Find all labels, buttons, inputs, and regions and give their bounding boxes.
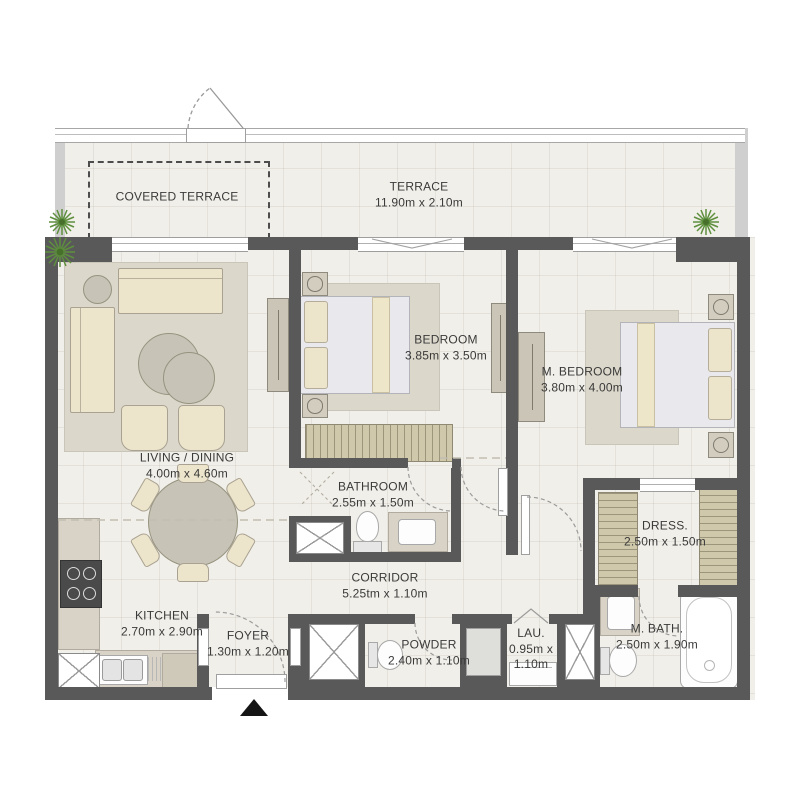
room-label-powder: POWDER 2.40m x 1.10m xyxy=(388,638,470,669)
room-dims: 3.80m x 4.00m xyxy=(541,380,623,396)
shaft-x xyxy=(296,522,344,554)
shaft-x xyxy=(309,624,359,680)
room-name: M. BATH. xyxy=(616,622,698,638)
room-name: LIVING / DINING xyxy=(140,451,234,467)
room-label-bedroom: BEDROOM 3.85m x 3.50m xyxy=(405,333,487,364)
wall xyxy=(365,614,415,624)
room-dims: 2.70m x 2.90m xyxy=(121,624,203,640)
room-dims: 3.85m x 3.50m xyxy=(405,348,487,364)
chair-icon xyxy=(177,563,209,582)
room-name: M. BEDROOM xyxy=(541,365,623,381)
wall xyxy=(289,458,408,468)
room-dims: 2.50m x 1.50m xyxy=(624,534,706,550)
room-label-master-bath: M. BATH. 2.50m x 1.90m xyxy=(616,622,698,653)
wall xyxy=(595,585,638,597)
nightstand-icon xyxy=(708,432,734,458)
room-name: LAU. xyxy=(503,626,559,642)
entry-arrow-icon xyxy=(240,699,268,716)
floor-plan: COVERED TERRACE TERRACE 11.90m x 2.10m L… xyxy=(0,0,800,800)
wardrobe-icon xyxy=(305,424,453,462)
wall xyxy=(507,614,512,624)
sofa-icon xyxy=(118,268,223,314)
room-label-kitchen: KITCHEN 2.70m x 2.90m xyxy=(121,609,203,640)
armchair-icon xyxy=(178,405,225,451)
wall xyxy=(464,237,573,250)
room-name: KITCHEN xyxy=(121,609,203,625)
room-label-laundry: LAU. 0.95m x 1.10m xyxy=(503,626,559,673)
room-label-covered-terrace: COVERED TERRACE xyxy=(116,189,239,205)
side-table-icon xyxy=(83,275,112,304)
window xyxy=(112,237,248,252)
wall xyxy=(451,468,461,562)
cooktop-icon xyxy=(60,560,102,608)
room-label-corridor: CORRIDOR 5.25tm x 1.10m xyxy=(342,571,428,602)
wall xyxy=(248,237,358,250)
room-name: BEDROOM xyxy=(405,333,487,349)
room-label-foyer: FOYER 1.30m x 1.20m xyxy=(207,629,289,660)
room-name: POWDER xyxy=(388,638,470,654)
armchair-icon xyxy=(121,405,168,451)
nightstand-icon xyxy=(302,272,328,296)
kitchen-shaft-x xyxy=(58,653,100,689)
wall xyxy=(288,687,750,700)
dining-table-icon xyxy=(148,477,238,567)
room-name: BATHROOM xyxy=(332,480,414,496)
wall xyxy=(45,250,58,700)
coffee-table-icon xyxy=(163,352,215,404)
vanity-sink-icon xyxy=(388,512,448,552)
tv-unit-icon xyxy=(267,298,289,392)
terrace-rail-top-left xyxy=(55,128,186,143)
room-dims: 1.30m x 1.20m xyxy=(207,644,289,660)
kitchen-sink-icon xyxy=(98,655,148,685)
room-name: FOYER xyxy=(207,629,289,645)
sofa-icon xyxy=(70,307,115,413)
nightstand-icon xyxy=(708,294,734,320)
sliding-door xyxy=(640,478,695,492)
wall xyxy=(595,478,640,490)
window xyxy=(573,237,676,252)
bed-icon xyxy=(300,296,410,394)
room-label-living-dining: LIVING / DINING 4.00m x 4.60m xyxy=(140,451,234,482)
room-label-dressing: DRESS. 2.50m x 1.50m xyxy=(624,519,706,550)
door-leaf xyxy=(521,495,530,555)
nightstand-icon xyxy=(302,394,328,418)
pocket-door xyxy=(466,628,501,676)
room-dims: 0.95m x 1.10m xyxy=(503,641,559,672)
room-dims: 2.50m x 1.90m xyxy=(616,637,698,653)
wall xyxy=(737,250,750,700)
wall xyxy=(695,478,737,490)
terrace-rail-top-right xyxy=(244,128,745,143)
wall xyxy=(45,687,212,700)
door-leaf xyxy=(498,468,508,516)
wall xyxy=(452,614,460,624)
room-label-master-bedroom: M. BEDROOM 3.80m x 4.00m xyxy=(541,365,623,396)
terrace-rail-right xyxy=(735,128,748,240)
drainboard-icon xyxy=(148,657,162,681)
wall xyxy=(595,597,600,614)
door-leaf xyxy=(290,628,301,666)
room-name: TERRACE xyxy=(375,180,463,196)
shaft-x xyxy=(565,624,595,680)
room-name: COVERED TERRACE xyxy=(116,189,239,205)
wall xyxy=(289,250,301,458)
room-dims: 2.40m x 1.10m xyxy=(388,653,470,669)
terrace-gate xyxy=(188,88,243,128)
terrace-gate-threshold xyxy=(186,128,246,143)
room-label-bathroom: BATHROOM 2.55m x 1.50m xyxy=(332,480,414,511)
wall xyxy=(452,458,461,468)
room-dims: 5.25tm x 1.10m xyxy=(342,586,428,602)
wall xyxy=(678,585,737,597)
room-dims: 11.90m x 2.10m xyxy=(375,195,463,211)
room-dims: 2.55m x 1.50m xyxy=(332,495,414,511)
room-dims: 4.00m x 4.60m xyxy=(140,466,234,482)
wall xyxy=(583,478,595,614)
terrace-rail-left xyxy=(55,128,65,240)
wall xyxy=(549,614,557,624)
room-label-terrace: TERRACE 11.90m x 2.10m xyxy=(375,180,463,211)
toilet-icon xyxy=(353,511,381,552)
entry-door xyxy=(216,674,287,689)
bed-icon xyxy=(620,322,737,428)
kitchen-counter-block xyxy=(162,653,198,689)
window xyxy=(358,237,464,252)
room-name: DRESS. xyxy=(624,519,706,535)
room-name: CORRIDOR xyxy=(342,571,428,587)
